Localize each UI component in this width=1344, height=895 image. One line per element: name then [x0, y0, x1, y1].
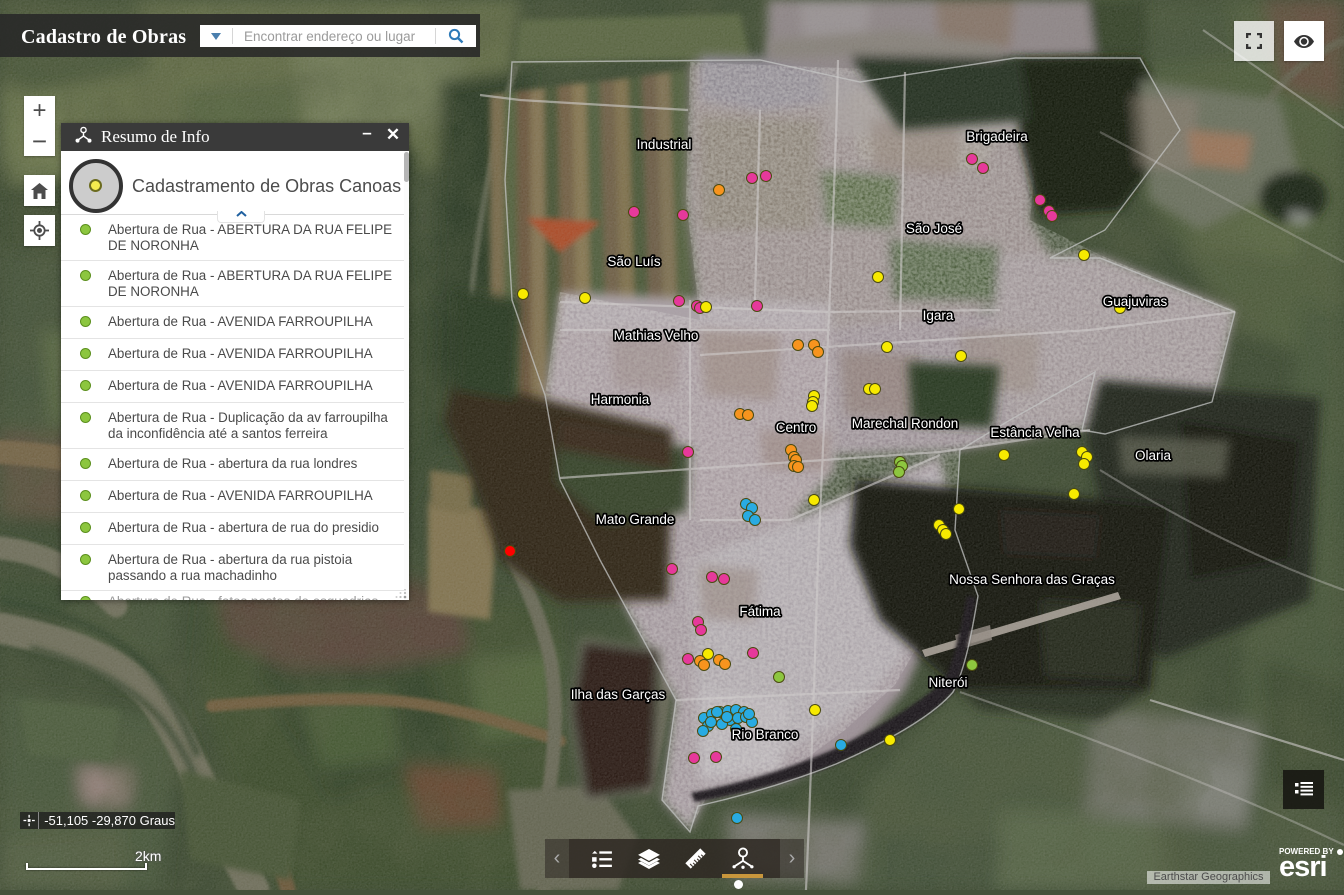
svg-text:Brigadeira: Brigadeira	[966, 129, 1028, 144]
svg-text:Fátima: Fátima	[739, 604, 781, 619]
svg-text:Estância Velha: Estância Velha	[990, 425, 1080, 440]
svg-text:Centro: Centro	[776, 420, 817, 435]
svg-text:Nossa Senhora das Graças: Nossa Senhora das Graças	[949, 572, 1115, 587]
svg-text:Mato Grande: Mato Grande	[596, 512, 675, 527]
svg-text:Ilha das Garças: Ilha das Garças	[571, 687, 666, 702]
svg-text:Olaria: Olaria	[1135, 448, 1172, 463]
svg-text:Mathias Velho: Mathias Velho	[614, 328, 699, 343]
svg-text:São Luís: São Luís	[607, 254, 661, 269]
svg-text:Igara: Igara	[923, 308, 954, 323]
svg-text:Niterói: Niterói	[928, 675, 967, 690]
svg-text:Harmonia: Harmonia	[591, 392, 650, 407]
svg-text:Marechal Rondon: Marechal Rondon	[852, 416, 959, 431]
svg-text:São José: São José	[906, 221, 962, 236]
svg-text:Industrial: Industrial	[637, 137, 692, 152]
svg-text:Rio Branco: Rio Branco	[732, 727, 799, 742]
svg-text:Guajuviras: Guajuviras	[1103, 294, 1168, 309]
